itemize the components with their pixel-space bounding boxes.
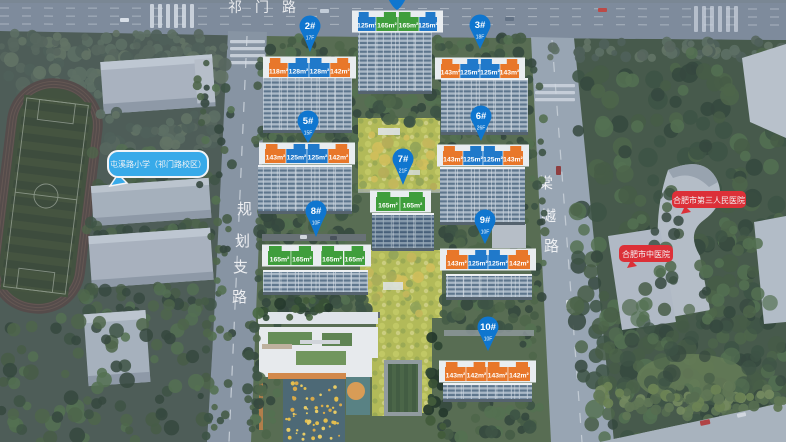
svg-text:10F: 10F xyxy=(484,337,493,343)
svg-text:142m²: 142m² xyxy=(509,260,529,267)
svg-text:125m²: 125m² xyxy=(418,22,438,29)
svg-text:128m²: 128m² xyxy=(289,68,309,75)
svg-text:165m²: 165m² xyxy=(378,202,398,209)
svg-text:8#: 8# xyxy=(311,206,322,217)
svg-text:142m²: 142m² xyxy=(329,154,349,161)
svg-text:128m²: 128m² xyxy=(310,68,330,75)
svg-text:5#: 5# xyxy=(303,116,314,127)
svg-text:7#: 7# xyxy=(398,154,409,165)
svg-text:143m²: 143m² xyxy=(447,260,467,267)
svg-text:165m²: 165m² xyxy=(345,256,365,263)
svg-text:10F: 10F xyxy=(481,230,490,236)
svg-text:6#: 6# xyxy=(476,111,487,122)
svg-text:125m²: 125m² xyxy=(460,69,480,76)
svg-text:143m²: 143m² xyxy=(446,372,466,379)
svg-text:143m²: 143m² xyxy=(488,372,508,379)
svg-text:125m²: 125m² xyxy=(308,154,328,161)
svg-text:142m²: 142m² xyxy=(330,68,350,75)
svg-text:165m²: 165m² xyxy=(270,256,290,263)
svg-text:143m²: 143m² xyxy=(503,156,523,163)
svg-text:17F: 17F xyxy=(306,36,315,42)
svg-text:165m²: 165m² xyxy=(377,22,397,29)
svg-text:143m²: 143m² xyxy=(266,154,286,161)
svg-text:165m²: 165m² xyxy=(399,22,419,29)
svg-text:125m²: 125m² xyxy=(357,22,377,29)
svg-text:26F: 26F xyxy=(477,126,486,132)
svg-text:165m²: 165m² xyxy=(322,256,342,263)
svg-text:165m²: 165m² xyxy=(403,202,423,209)
svg-text:125m²: 125m² xyxy=(463,156,483,163)
svg-text:2#: 2# xyxy=(305,21,316,32)
svg-text:125m²: 125m² xyxy=(480,69,500,76)
svg-text:118m²: 118m² xyxy=(269,68,289,75)
svg-text:125m²: 125m² xyxy=(488,260,508,267)
svg-text:143m²: 143m² xyxy=(443,156,463,163)
svg-text:143m²: 143m² xyxy=(500,69,520,76)
svg-text:125m²: 125m² xyxy=(483,156,503,163)
svg-text:15F: 15F xyxy=(304,131,313,137)
svg-text:142m²: 142m² xyxy=(467,372,487,379)
svg-text:10F: 10F xyxy=(312,221,321,227)
svg-text:18F: 18F xyxy=(476,35,485,41)
svg-text:10#: 10# xyxy=(480,322,497,333)
svg-text:143m²: 143m² xyxy=(441,69,461,76)
svg-text:125m²: 125m² xyxy=(287,154,307,161)
svg-text:9#: 9# xyxy=(480,215,491,226)
svg-text:21F: 21F xyxy=(399,169,408,175)
svg-text:165m²: 165m² xyxy=(292,256,312,263)
svg-text:142m²: 142m² xyxy=(509,372,529,379)
svg-text:125m²: 125m² xyxy=(468,260,488,267)
svg-text:3#: 3# xyxy=(475,20,486,31)
